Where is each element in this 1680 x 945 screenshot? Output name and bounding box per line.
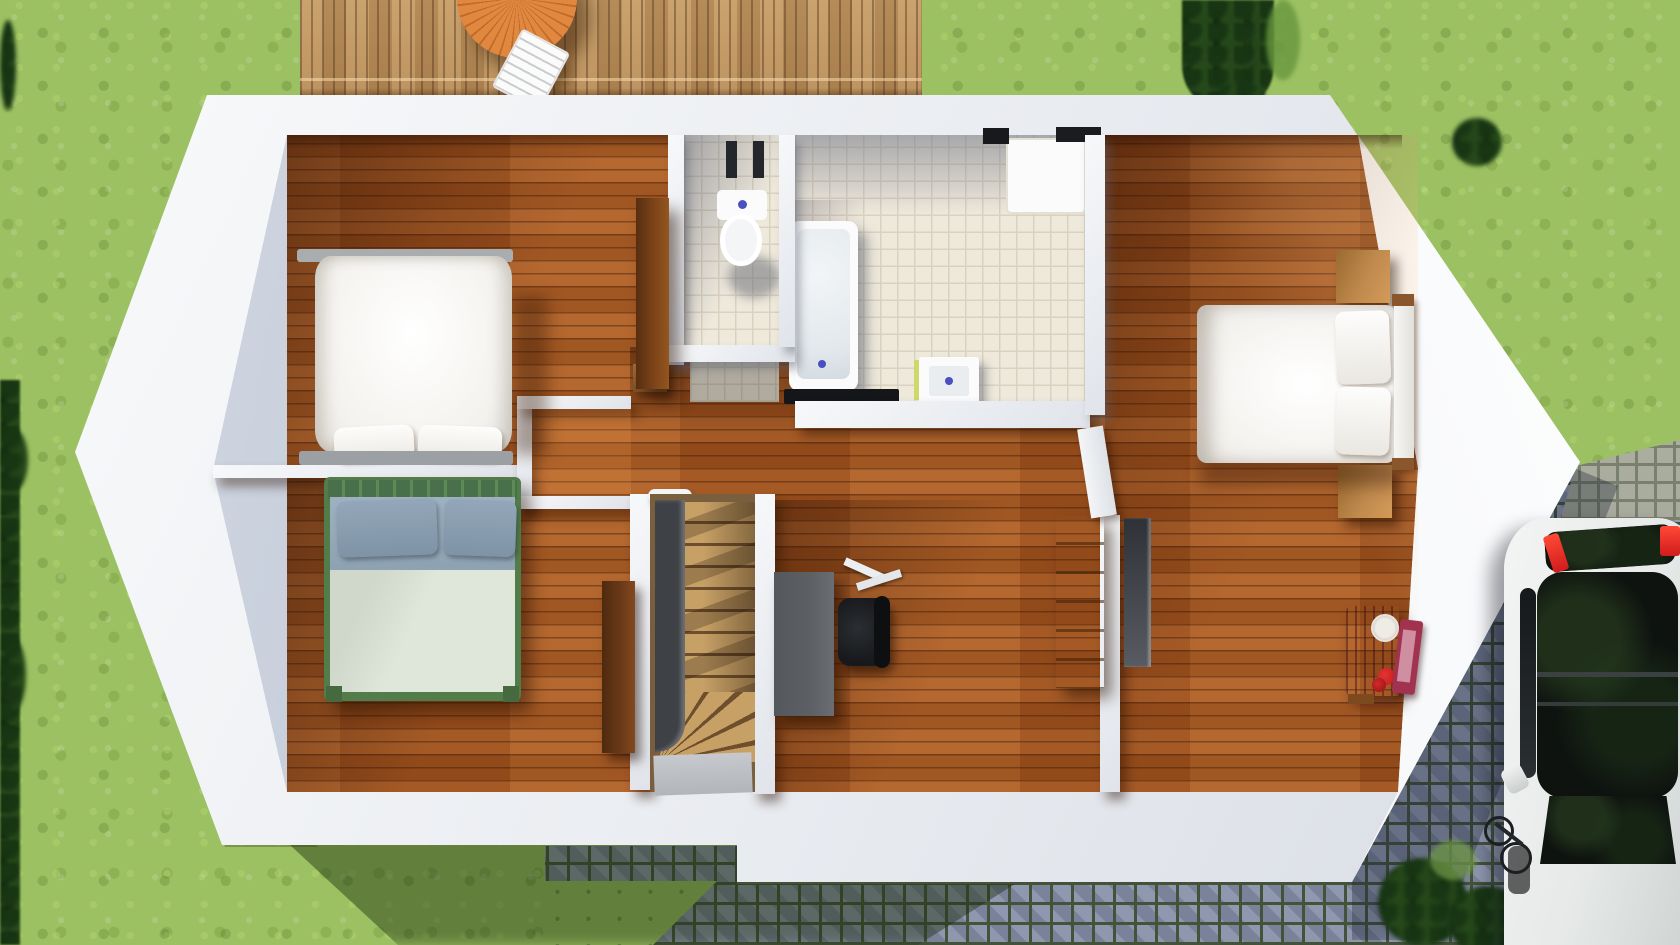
wall-wc-left — [668, 135, 684, 365]
bed3-headboard-cap-bottom — [1392, 458, 1414, 470]
wc-wall-slot-right — [753, 141, 764, 178]
bicycle-wheel-front — [1500, 842, 1532, 874]
left-hedge-blob — [2, 430, 28, 490]
car-roof-bar-2 — [1537, 702, 1678, 706]
brown-door — [602, 581, 635, 753]
bed1-shadow — [512, 295, 548, 455]
toilet-bowl — [720, 214, 762, 266]
bed2-foot-left — [326, 686, 342, 702]
left-hedge-blob — [2, 640, 26, 710]
pine-shrub-corner — [1452, 118, 1502, 166]
bathtub-drain — [818, 360, 826, 368]
wall-bedroom-right-upper — [1085, 135, 1105, 415]
shower-tray — [1006, 138, 1086, 214]
bed2-pillow-right — [443, 499, 517, 557]
wall-wc-bath-divider — [779, 135, 795, 347]
bathtub-basin — [797, 229, 850, 379]
wall-wc-bottom — [668, 345, 795, 362]
oak-shelf — [1056, 516, 1104, 688]
bed2-pillow-left — [336, 498, 438, 557]
gray-landing — [653, 752, 752, 795]
wall-stairs-right — [753, 494, 775, 794]
left-hedge-top-patch — [0, 20, 16, 110]
car-roof-glass — [1537, 572, 1678, 798]
nightstand-north — [1336, 250, 1390, 303]
towel — [914, 360, 919, 400]
vanity-round-dish — [1371, 614, 1399, 642]
toilet-flush-button — [738, 200, 747, 209]
sink-drain — [945, 377, 953, 385]
deck-edge-shadow — [300, 88, 922, 95]
car-windshield — [1540, 796, 1676, 864]
dark-wardrobe — [1124, 518, 1151, 667]
wall-bathroom-bottom — [795, 401, 1090, 428]
floorplan-scene — [0, 0, 1680, 945]
brown-wardrobe — [636, 198, 669, 389]
dark-stringer — [655, 500, 685, 752]
car-taillight-right — [1660, 526, 1680, 556]
car-roof-bar-1 — [1537, 672, 1678, 677]
bed1-duvet — [315, 256, 512, 452]
bed1-foot-bar — [299, 451, 513, 465]
chair-backrest — [874, 596, 890, 668]
deck-edge-board — [300, 78, 922, 81]
gray-desk — [774, 572, 834, 716]
car-side-windows-left — [1520, 588, 1536, 778]
shrubs-light-patch — [1430, 840, 1476, 880]
vanity-foot-shelf — [1348, 694, 1374, 704]
bed3-pillow-top — [1335, 310, 1392, 385]
hedge-light-fringe — [1266, 0, 1300, 80]
roof-vent — [983, 128, 1009, 144]
vanity-red-jar-2 — [1372, 678, 1386, 692]
bed2-foot-right — [503, 686, 519, 702]
bed3-headboard-cap-top — [1392, 294, 1414, 306]
wall-alcove-bottom — [517, 496, 631, 509]
bed3-headboard — [1394, 296, 1414, 468]
bed2-duvet-lower — [330, 570, 515, 692]
bed3-pillow-bottom — [1335, 386, 1391, 456]
wc-wall-slot-left — [726, 141, 737, 178]
